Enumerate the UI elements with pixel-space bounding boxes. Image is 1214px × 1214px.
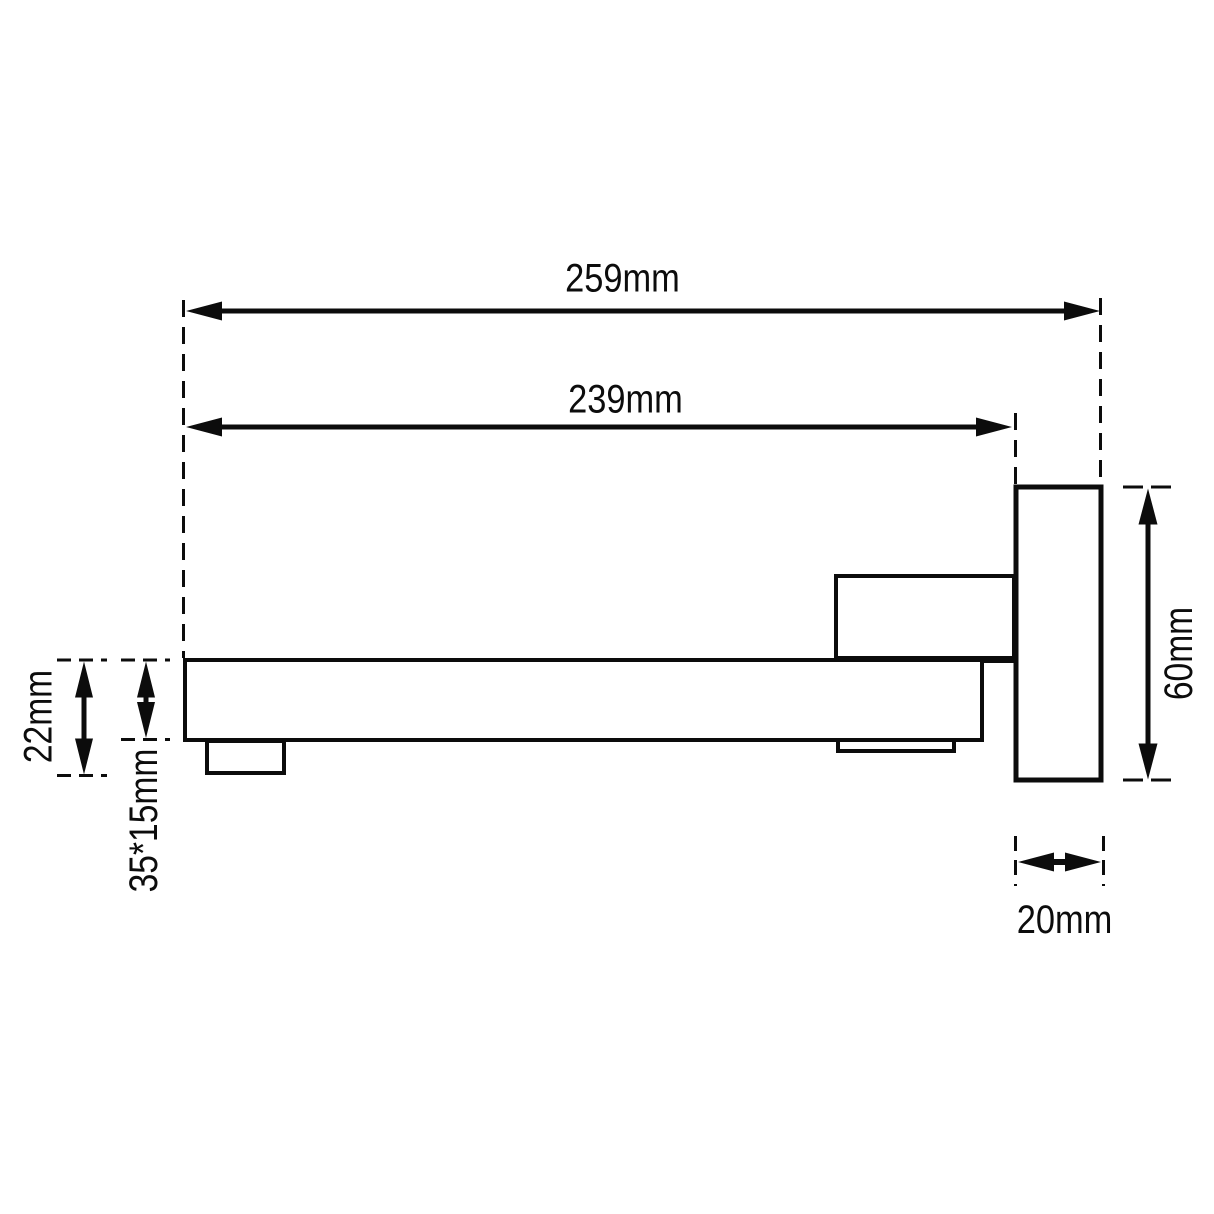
svg-text:239mm: 239mm — [568, 376, 683, 421]
svg-text:22mm: 22mm — [16, 670, 60, 763]
svg-text:60mm: 60mm — [1156, 607, 1200, 700]
svg-text:35*15mm: 35*15mm — [121, 749, 165, 893]
svg-text:20mm: 20mm — [1017, 897, 1113, 942]
svg-text:259mm: 259mm — [565, 255, 680, 300]
